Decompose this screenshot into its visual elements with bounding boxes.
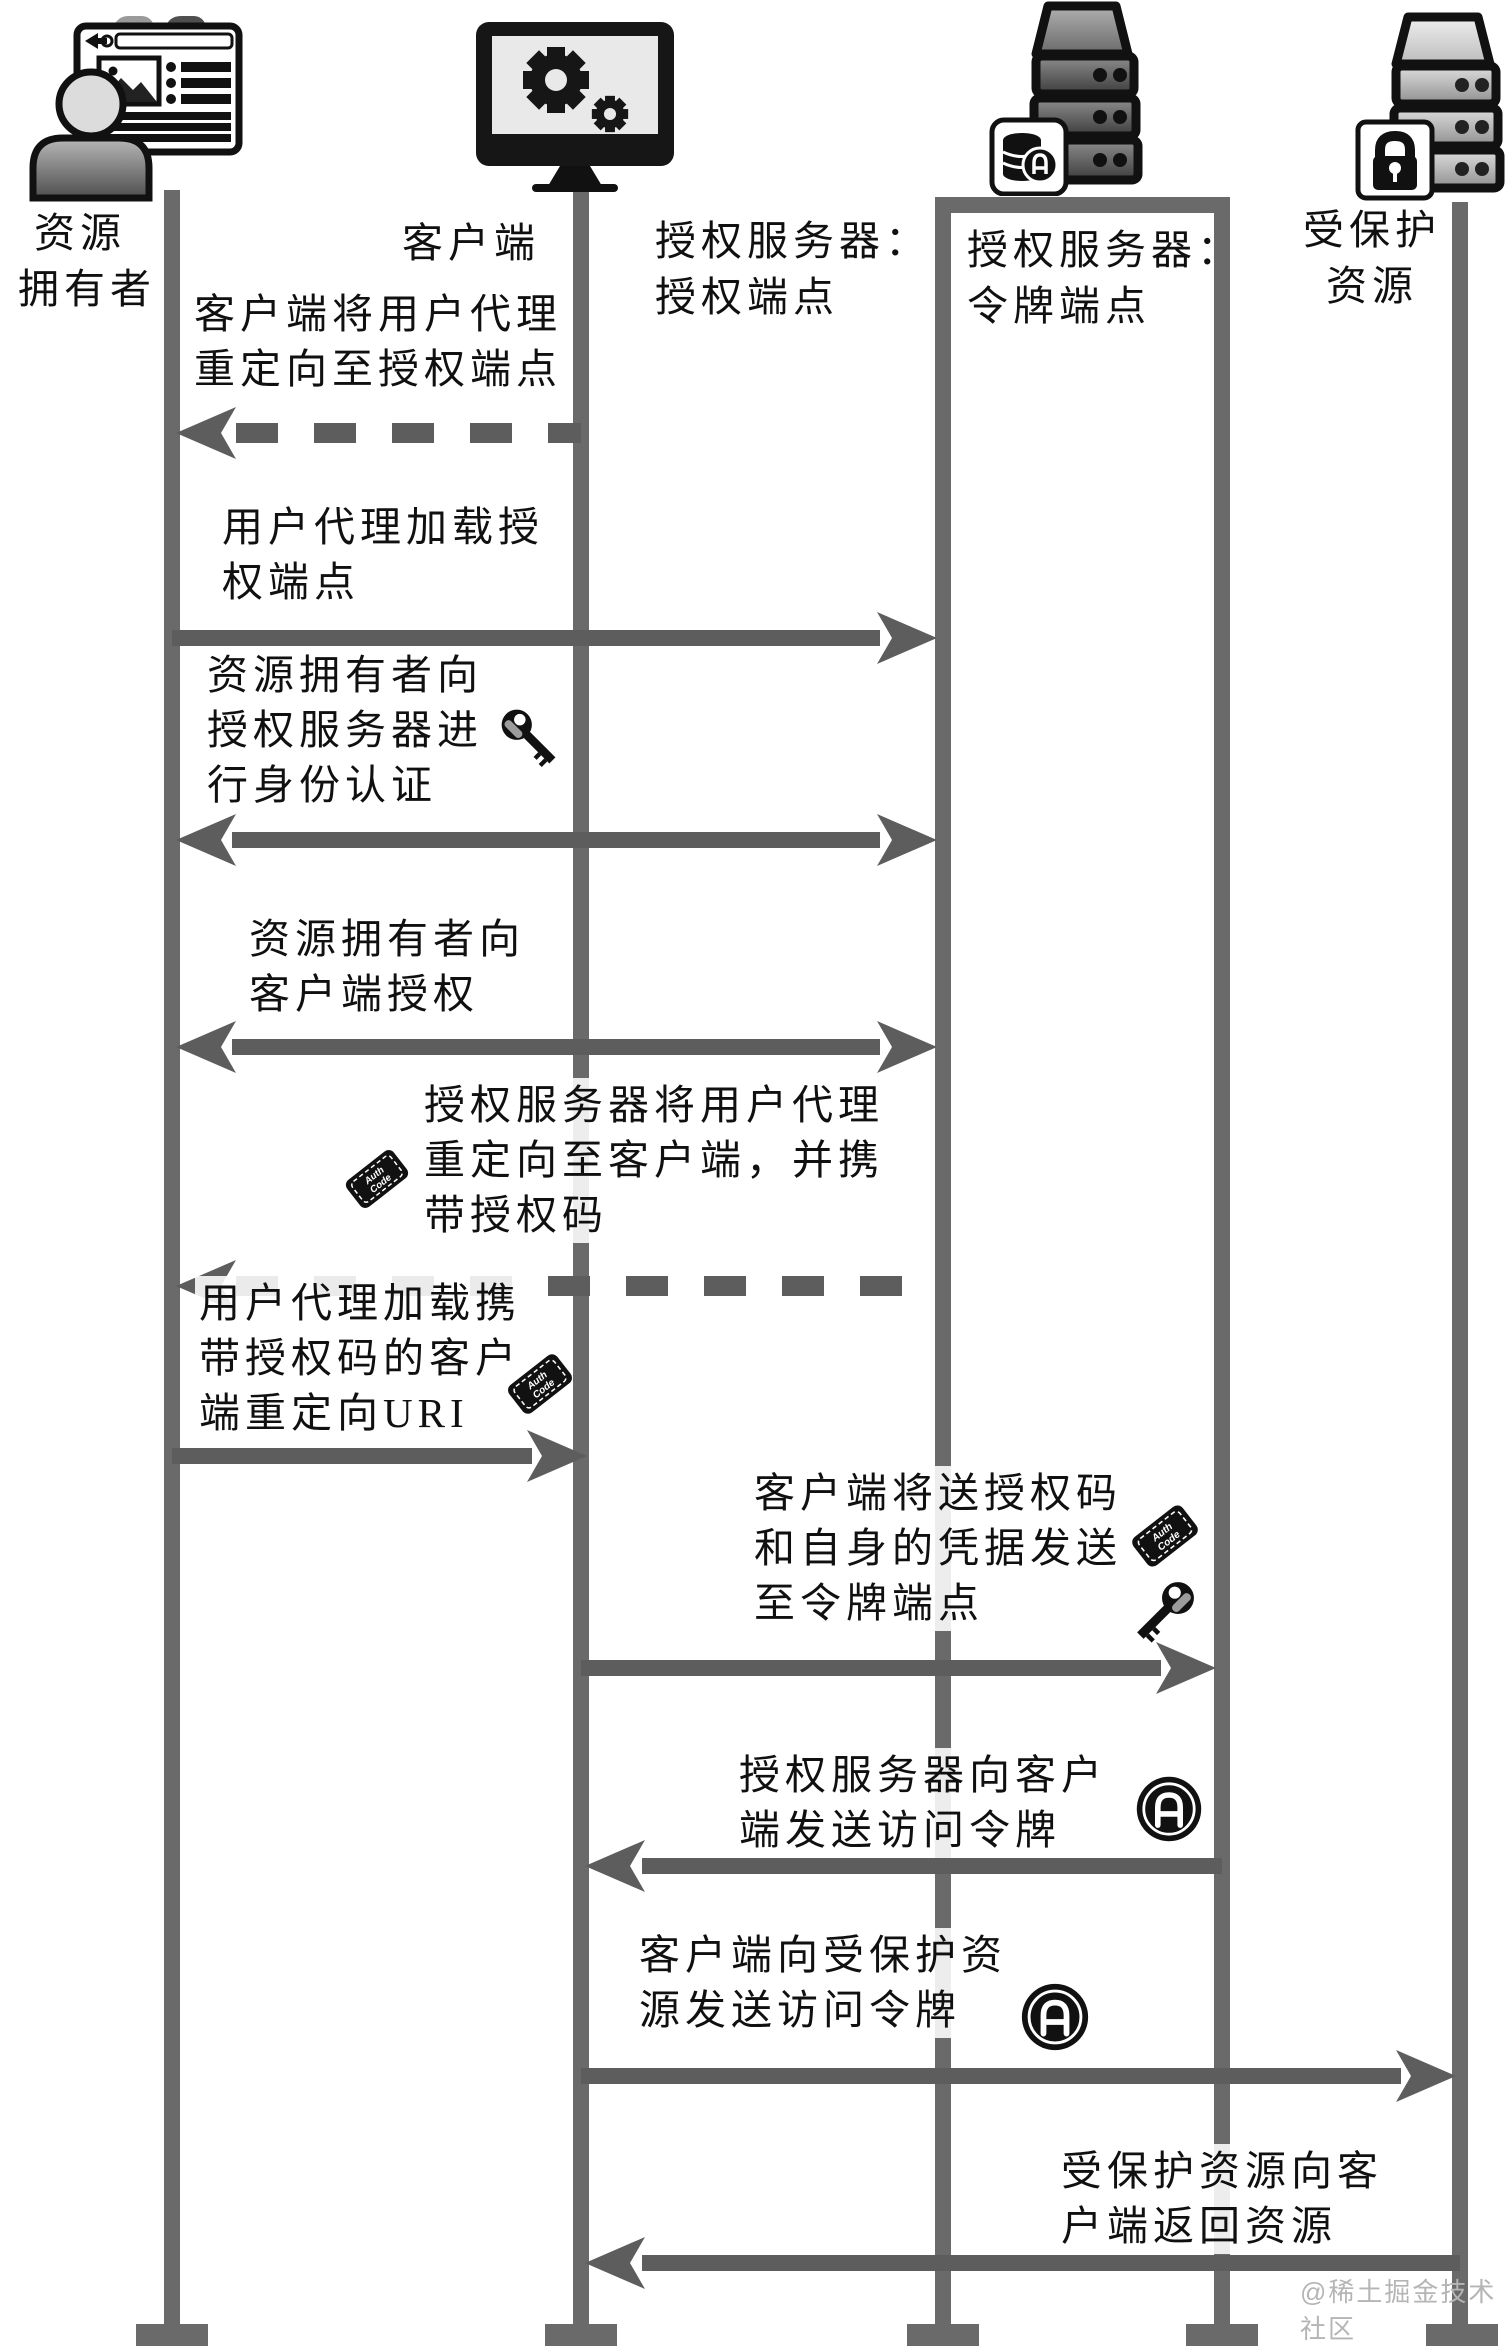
arrow-3-head-left [176, 814, 236, 866]
message-5-label: 授权服务器将用户代理 重定向至客户端，并携 带授权码 [420, 1078, 888, 1243]
arrow-4-head-left [176, 1021, 236, 1073]
server-database-icon [988, 0, 1168, 196]
access-token-icon [1019, 1981, 1091, 2053]
arrow-1-shaft [236, 423, 581, 443]
lifeline-token-endpoint [1214, 197, 1230, 2325]
message-2-label: 用户代理加载授 权端点 [218, 500, 548, 610]
lifeline-client [573, 192, 589, 2325]
actor-label-token-endpoint: 授权服务器： 令牌端点 [967, 222, 1243, 334]
key-icon [494, 702, 566, 774]
message-1-label: 客户端将用户代理 重定向至授权端点 [190, 287, 566, 397]
oauth-sequence-diagram: 资源 拥有者 客户端 授权服务器： 授权端点 授权服务器： 令牌端点 受保护 资… [0, 0, 1512, 2346]
message-7-label: 客户端将送授权码 和自身的凭据发送 至令牌端点 [750, 1466, 1126, 1631]
lifeline-resource-owner [164, 190, 180, 2325]
lifeline-foot [907, 2324, 979, 2346]
actor-label-auth-endpoint: 授权服务器： 授权端点 [655, 213, 931, 325]
arrow-10-shaft [642, 2255, 1460, 2271]
monitor-gears-icon [472, 18, 678, 194]
arrow-2-head [877, 612, 937, 664]
key-icon [1126, 1574, 1202, 1650]
arrow-3-head-right [877, 814, 937, 866]
actor-label-client: 客户端 [402, 215, 540, 271]
token-endpoint-box-top [935, 197, 1230, 213]
lifeline-protected-resource [1452, 202, 1468, 2325]
arrow-10-head [585, 2237, 645, 2289]
user-browser-icon [15, 10, 265, 202]
actor-label-protected-resource: 受保护 资源 [1290, 202, 1454, 314]
message-3-label: 资源拥有者向 授权服务器进 行身份认证 [203, 648, 487, 813]
arrow-6-shaft [172, 1448, 532, 1464]
actor-label-resource-owner: 资源 拥有者 [18, 205, 142, 317]
message-9-label: 客户端向受保护资 源发送访问令牌 [635, 1928, 1011, 2038]
lifeline-foot [1186, 2324, 1258, 2346]
arrow-1-head [176, 407, 236, 459]
auth-code-ticket-icon [502, 1344, 578, 1424]
arrow-9-head [1396, 2050, 1456, 2102]
arrow-4-shaft [232, 1039, 880, 1055]
message-8-label: 授权服务器向客户 端发送访问令牌 [735, 1748, 1111, 1858]
auth-code-ticket-icon [340, 1140, 414, 1218]
arrow-7-shaft [581, 1660, 1161, 1676]
arrow-8-head [585, 1840, 645, 1892]
arrow-4-head-right [877, 1021, 937, 1073]
message-10-label: 受保护资源向客 户端返回资源 [1057, 2144, 1387, 2254]
arrow-9-shaft [581, 2068, 1401, 2084]
auth-code-ticket-icon [1126, 1496, 1204, 1576]
message-4-label: 资源拥有者向 客户端授权 [245, 912, 529, 1022]
lifeline-foot [545, 2324, 617, 2346]
watermark: @稀土掘金技术社区 [1300, 2272, 1512, 2346]
server-lock-icon [1352, 12, 1512, 204]
message-6-label: 用户代理加载携 带授权码的客户 端重定向URI [195, 1276, 525, 1441]
lifeline-foot [136, 2324, 208, 2346]
access-token-icon [1134, 1774, 1204, 1844]
arrow-8-shaft [642, 1858, 1222, 1874]
arrow-2-shaft [172, 630, 880, 646]
arrow-3-shaft [232, 832, 880, 848]
